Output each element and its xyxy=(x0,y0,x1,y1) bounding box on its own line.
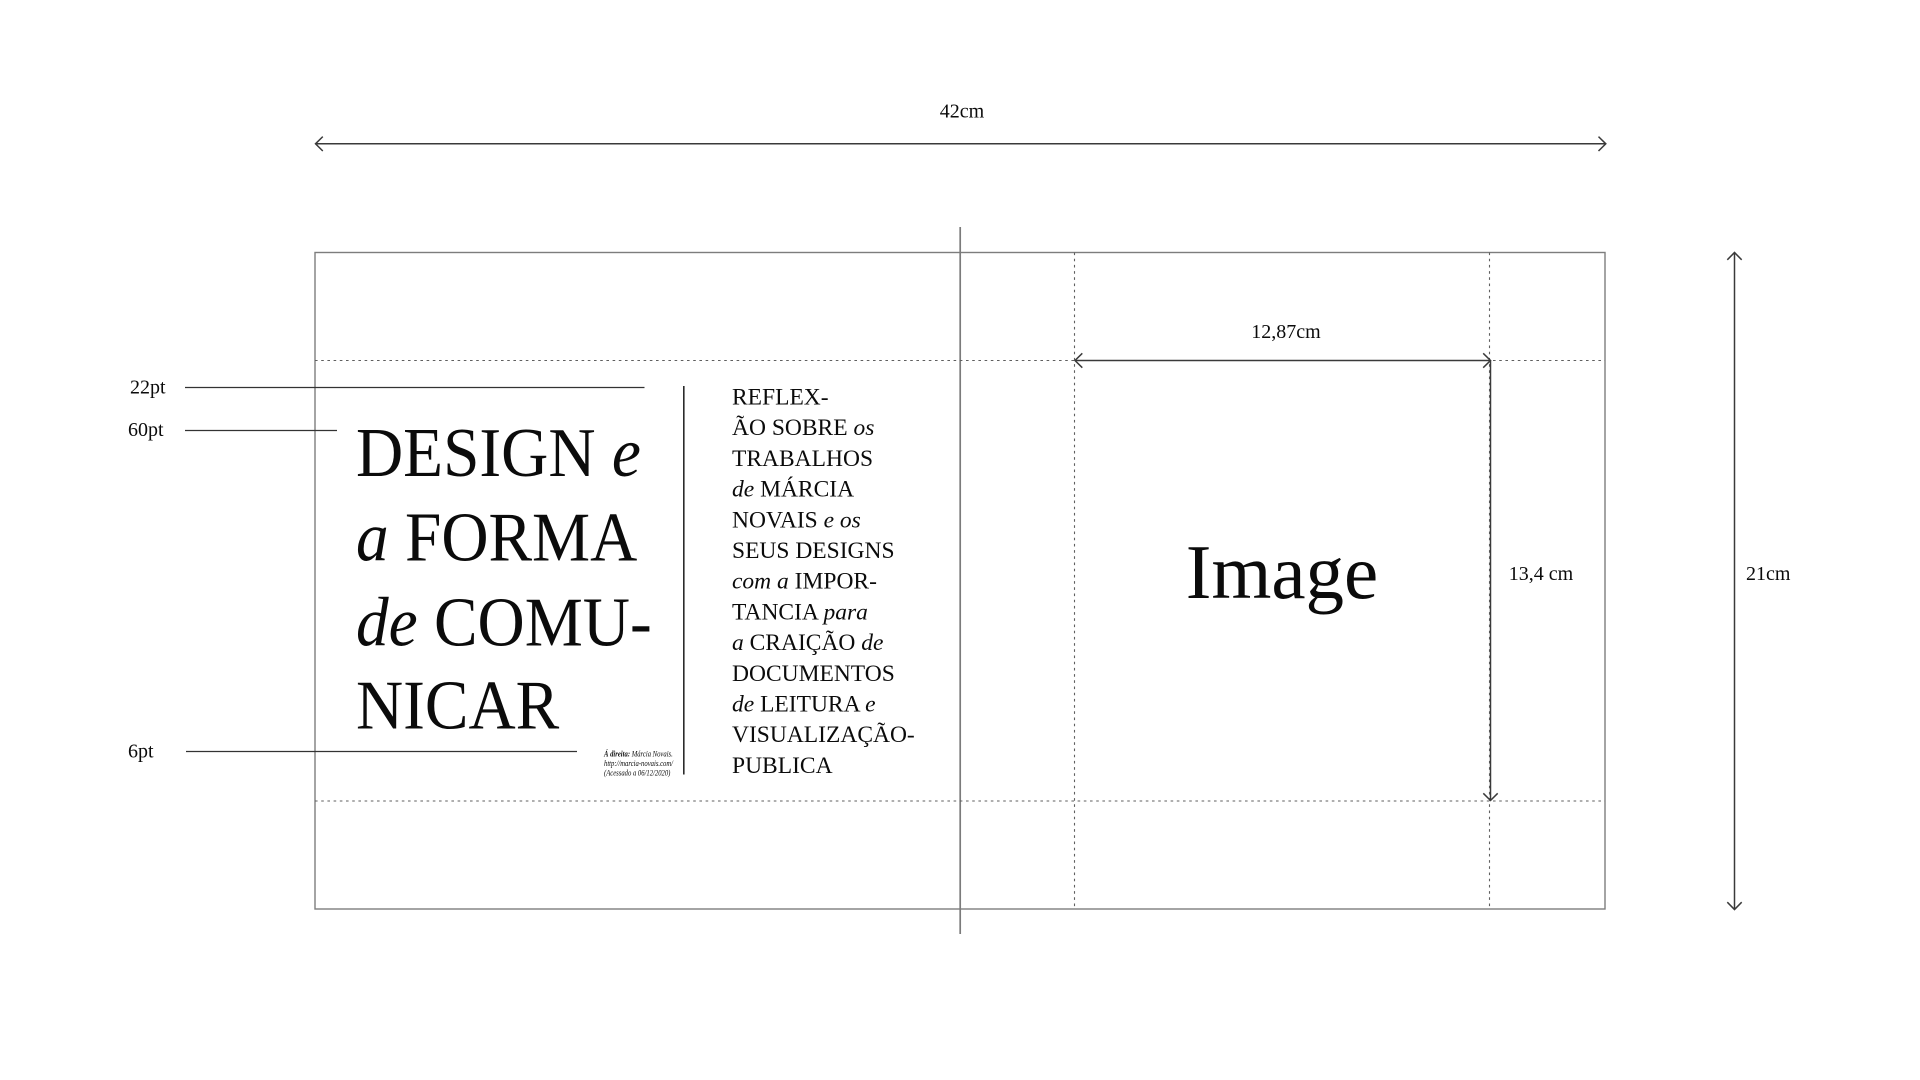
svg-text:de MÁRCIA: de MÁRCIA xyxy=(732,477,854,503)
svg-text:a CRAIÇÃO de: a CRAIÇÃO de xyxy=(732,630,883,656)
svg-text:de COMU-: de COMU- xyxy=(356,584,652,661)
svg-text:DOCUMENTOS: DOCUMENTOS xyxy=(732,661,895,687)
svg-text:(Acessado a 06/12/2020): (Acessado a 06/12/2020) xyxy=(604,769,671,778)
svg-text:http://marcia-novais.com/: http://marcia-novais.com/ xyxy=(604,759,674,768)
svg-text:de LEITURA e: de LEITURA e xyxy=(732,692,876,718)
svg-text:Image: Image xyxy=(1186,529,1378,615)
svg-text:TANCIA para: TANCIA para xyxy=(732,599,868,625)
svg-text:SEUS DESIGNS: SEUS DESIGNS xyxy=(732,538,895,564)
svg-text:REFLEX-: REFLEX- xyxy=(732,385,829,411)
svg-text:12,87cm: 12,87cm xyxy=(1251,321,1321,343)
svg-text:DESIGN e: DESIGN e xyxy=(356,414,641,491)
svg-text:NOVAIS e os: NOVAIS e os xyxy=(732,507,861,533)
svg-text:PUBLICA: PUBLICA xyxy=(732,753,833,779)
svg-text:com a IMPOR-: com a IMPOR- xyxy=(732,569,877,595)
svg-text:6pt: 6pt xyxy=(128,741,154,763)
svg-text:NICAR: NICAR xyxy=(356,666,559,743)
svg-text:13,4 cm: 13,4 cm xyxy=(1509,563,1574,585)
svg-text:21cm: 21cm xyxy=(1746,563,1791,585)
svg-text:Á direita: Márcia Novais.: Á direita: Márcia Novais. xyxy=(603,749,673,759)
svg-text:VISUALIZAÇÃO-: VISUALIZAÇÃO- xyxy=(732,722,915,748)
svg-text:42cm: 42cm xyxy=(940,101,985,123)
svg-text:ÃO SOBRE os: ÃO SOBRE os xyxy=(732,415,874,441)
svg-text:TRABALHOS: TRABALHOS xyxy=(732,446,873,472)
svg-text:60pt: 60pt xyxy=(128,419,164,441)
svg-text:22pt: 22pt xyxy=(130,377,166,399)
svg-text:a FORMA: a FORMA xyxy=(356,499,638,576)
